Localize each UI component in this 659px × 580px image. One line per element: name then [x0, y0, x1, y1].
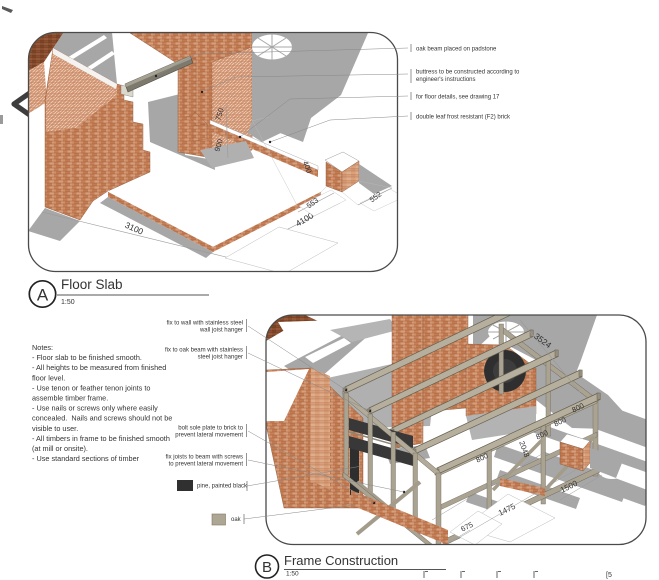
svg-text:oak: oak: [231, 517, 242, 523]
svg-text:prevent lateral movement: prevent lateral movement: [175, 433, 243, 439]
svg-text:fix joists to beam with screws: fix joists to beam with screws: [166, 455, 243, 461]
svg-text:assemble timber frame.: assemble timber frame.: [32, 394, 108, 403]
svg-text:- Use nails or screws only whe: - Use nails or screws only where easily: [32, 404, 158, 413]
svg-text:buttress to be constructed acc: buttress to be constructed according to: [416, 70, 520, 76]
svg-text:- All heights to be measured f: - All heights to be measured from finish…: [32, 363, 166, 372]
svg-text:engineer's instructions: engineer's instructions: [416, 77, 476, 83]
svg-text:- Use standard sections of tim: - Use standard sections of timber: [32, 454, 140, 463]
svg-text:wall joist hanger: wall joist hanger: [199, 328, 243, 334]
svg-text:visible to user.: visible to user.: [32, 424, 78, 433]
svg-text:steel joist hanger: steel joist hanger: [198, 355, 243, 361]
svg-text:Floor Slab: Floor Slab: [61, 277, 123, 292]
svg-text:Frame Construction: Frame Construction: [284, 553, 398, 568]
svg-text:bolt sole plate to brick to: bolt sole plate to brick to: [178, 426, 243, 432]
svg-text:- All timbers in frame to be f: - All timbers in frame to be finished sm…: [32, 434, 170, 443]
svg-text:[5: [5: [606, 572, 612, 579]
svg-text:concealed. Nails and screws s: concealed. Nails and screws should not b…: [32, 414, 172, 423]
svg-text:for floor details, see drawing: for floor details, see drawing 17: [416, 95, 500, 101]
svg-text:pine, painted black: pine, painted black: [197, 484, 248, 490]
svg-text:fix to oak beam with stainless: fix to oak beam with stainless: [165, 348, 243, 354]
svg-text:(at mill or onsite).: (at mill or onsite).: [32, 444, 88, 453]
svg-text:A: A: [37, 286, 49, 305]
svg-text:1:50: 1:50: [286, 571, 299, 578]
svg-text:- Use tenon or feather tenon j: - Use tenon or feather tenon joints to: [32, 383, 150, 392]
svg-text:floor level.: floor level.: [32, 373, 65, 382]
svg-text:Notes:: Notes:: [32, 343, 53, 352]
svg-text:oak beam placed on padstone: oak beam placed on padstone: [416, 47, 497, 53]
svg-text:1:50: 1:50: [61, 299, 75, 306]
svg-text:- Floor slab to be finished sm: - Floor slab to be finished smooth.: [32, 353, 142, 362]
svg-text:B: B: [262, 559, 272, 576]
svg-text:fix to wall with stainless ste: fix to wall with stainless steel: [167, 321, 243, 327]
svg-text:to prevent lateral movement: to prevent lateral movement: [169, 462, 244, 468]
svg-text:double leaf frost resistant (F: double leaf frost resistant (F2) brick: [416, 115, 511, 121]
